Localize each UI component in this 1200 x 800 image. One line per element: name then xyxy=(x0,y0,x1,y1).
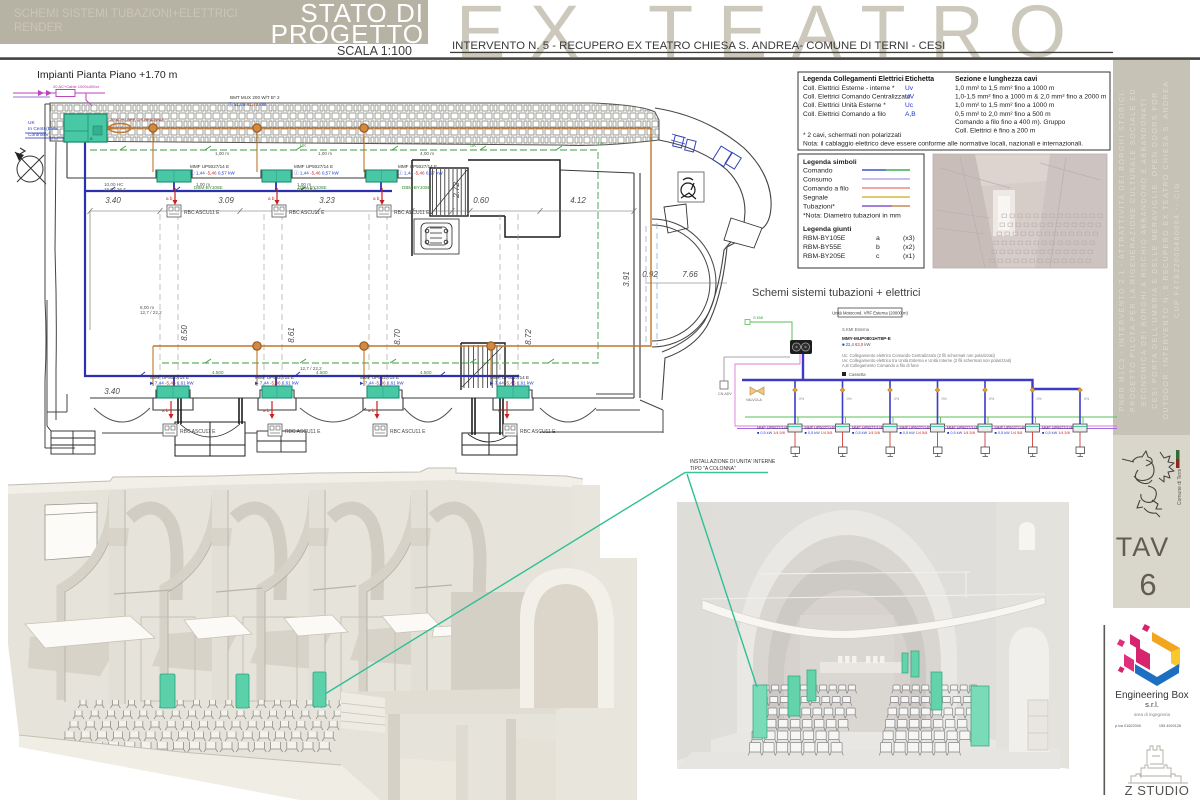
svg-text:Z STUDIO: Z STUDIO xyxy=(1125,783,1190,798)
svg-text:a b: a b xyxy=(373,196,380,201)
svg-text:UK: UK xyxy=(28,120,35,126)
svg-text:MMF UP5027/14 E: MMF UP5027/14 E xyxy=(360,375,399,380)
svg-text:■ 0,5 kW 1/4 5/8: ■ 0,5 kW 1/4 5/8 xyxy=(1042,431,1070,435)
svg-text:ⓘ 1,44 -5,46 0,57 kW: ⓘ 1,44 -5,46 0,57 kW xyxy=(294,170,339,177)
svg-text:0,5 mm² to 2,0 mm² fino a 500: 0,5 mm² to 2,0 mm² fino a 500 m xyxy=(955,111,1051,118)
svg-text:RBC ASCU11 E: RBC ASCU11 E xyxy=(390,429,426,435)
svg-text:A,B: A,B xyxy=(905,111,916,118)
svg-text:MMF UP5027/14 E: MMF UP5027/14 E xyxy=(150,375,189,380)
svg-text:BMT MUX 200 W/T B* 2: BMT MUX 200 W/T B* 2 xyxy=(230,95,280,100)
svg-text:DBM-BY105E: DBM-BY105E xyxy=(402,185,431,190)
svg-text:(x2): (x2) xyxy=(903,244,915,251)
svg-text:7.66: 7.66 xyxy=(682,270,698,279)
svg-text:S.KMI Esterna: S.KMI Esterna xyxy=(842,327,870,332)
svg-text:RBC ASCU11 E: RBC ASCU11 E xyxy=(520,429,556,435)
svg-text:Impianti Pianta Piano +1.70 m: Impianti Pianta Piano +1.70 m xyxy=(37,69,178,81)
svg-text:0%: 0% xyxy=(1084,397,1090,401)
svg-text:Cassetta: Cassetta xyxy=(849,372,866,377)
svg-text:*Nota: Diametro tubazioni in m: *Nota: Diametro tubazioni in mm xyxy=(803,213,901,220)
svg-text:MMF UP5027/14 E: MMF UP5027/14 E xyxy=(255,375,294,380)
svg-text:■ 0,5 kW 1/4 5/8: ■ 0,5 kW 1/4 5/8 xyxy=(852,431,880,435)
svg-text:0%: 0% xyxy=(1037,397,1043,401)
svg-text:MMF UP5027/14E: MMF UP5027/14E xyxy=(900,426,932,430)
svg-text:20 AC+U BRF C/S HEADWAY: 20 AC+U BRF C/S HEADWAY xyxy=(110,117,164,122)
svg-text:■ 0,5 kW 1/4 5/8: ■ 0,5 kW 1/4 5/8 xyxy=(947,431,975,435)
svg-text:1,00 m: 1,00 m xyxy=(318,151,332,156)
svg-text:EX TEATRO: EX TEATRO xyxy=(456,0,1066,73)
svg-text:CN-ADV: CN-ADV xyxy=(718,392,732,396)
svg-text:Coll. Elettrici è fino a 200 m: Coll. Elettrici è fino a 200 m xyxy=(955,128,1036,135)
svg-text:MMF UP5027/14 E: MMF UP5027/14 E xyxy=(490,375,529,380)
svg-text:0%: 0% xyxy=(799,397,805,401)
svg-text:OUTDOOR. INTERVENTO N. 5 RE: OUTDOOR. INTERVENTO N. 5 RECUPERO EX TEA… xyxy=(1163,81,1170,420)
svg-text:In Centr.(BMS: In Centr.(BMS xyxy=(28,126,58,132)
svg-text:MMF UP5027/14E: MMF UP5027/14E xyxy=(852,426,884,430)
svg-text:Comando a filo fino a 400 m).: Comando a filo fino a 400 m). Gruppo xyxy=(955,119,1066,126)
svg-text:b: b xyxy=(876,244,880,251)
svg-text:Consumo: Consumo xyxy=(803,177,832,184)
svg-text:6: 6 xyxy=(1139,567,1156,602)
svg-text:TIPO "A COLONNA": TIPO "A COLONNA" xyxy=(690,466,736,472)
svg-text:RBM-BY205E: RBM-BY205E xyxy=(803,253,846,260)
svg-text:▶ 7,44 -5,46 6,61 kW: ▶ 7,44 -5,46 6,61 kW xyxy=(490,381,534,386)
svg-text:Comando a filo: Comando a filo xyxy=(803,186,849,193)
svg-text:0,5 / 15,0: 0,5 / 15,0 xyxy=(297,187,317,192)
svg-text:a b: a b xyxy=(162,408,169,413)
svg-text:* 2 cavi, schermati non polari: * 2 cavi, schermati non polarizzati xyxy=(803,132,902,139)
svg-text:0%: 0% xyxy=(989,397,995,401)
svg-text:RBC ASCU11 E: RBC ASCU11 E xyxy=(289,210,325,216)
svg-text:MMF UP5027/14 E: MMF UP5027/14 E xyxy=(398,164,437,169)
svg-text:PNRR M1C3 - INTERVENTO 2.1 - A: PNRR M1C3 - INTERVENTO 2.1 - ATTRATTIVIT… xyxy=(1119,89,1126,412)
svg-text:3.91: 3.91 xyxy=(622,271,631,287)
svg-text:1,00 m: 1,00 m xyxy=(196,182,210,187)
svg-text:CUP F47B22000460004 -- CIG: CUP F47B22000460004 -- CIG xyxy=(1174,182,1181,318)
svg-text:Comando: Comando xyxy=(803,168,833,175)
svg-text:1,0-1,5 mm² fino a 1000 m & 2,: 1,0-1,5 mm² fino a 1000 m & 2,0 mm² fino… xyxy=(955,94,1107,101)
svg-text:Sezione e lunghezza cavi: Sezione e lunghezza cavi xyxy=(955,76,1037,83)
svg-text:Comune di Terni: Comune di Terni xyxy=(1177,469,1183,505)
svg-text:12,7 / 22,2: 12,7 / 22,2 xyxy=(140,310,162,315)
svg-text:■ 0,5 kW 1/4 5/8: ■ 0,5 kW 1/4 5/8 xyxy=(805,431,833,435)
svg-text:8.50: 8.50 xyxy=(180,325,189,341)
svg-text:4,00 m: 4,00 m xyxy=(420,151,434,156)
svg-text:UK: UK xyxy=(470,143,476,148)
svg-text:ⓘ 1,44 -5,46 0,57 kW: ⓘ 1,44 -5,46 0,57 kW xyxy=(398,170,443,177)
svg-text:PROGETTO PILOTA PER LA RIGENER: PROGETTO PILOTA PER LA RIGENERAZIONE CUL… xyxy=(1130,88,1137,412)
svg-text:MMF UP5027/14 E: MMF UP5027/14 E xyxy=(294,164,333,169)
svg-text:MMF UP5027/14E: MMF UP5027/14E xyxy=(757,426,789,430)
svg-text:■ 0,5 kW 1/4 5/8: ■ 0,5 kW 1/4 5/8 xyxy=(995,431,1023,435)
svg-text:15,9 / 26,7: 15,9 / 26,7 xyxy=(104,187,126,192)
svg-text:TAV: TAV xyxy=(1116,532,1171,562)
svg-text:Schemi sistemi tubazioni + ele: Schemi sistemi tubazioni + elettrici xyxy=(752,287,920,299)
svg-text:4.500: 4.500 xyxy=(420,370,432,375)
svg-text:0%: 0% xyxy=(942,397,948,401)
svg-text:a: a xyxy=(876,235,880,242)
svg-text:0%: 0% xyxy=(847,397,853,401)
svg-text:Coll. Elettrici Esterne - inte: Coll. Elettrici Esterne - interne * xyxy=(803,85,895,92)
svg-text:UK: UK xyxy=(300,143,306,148)
svg-text:ⓘ 51,08 41,70 kW: ⓘ 51,08 41,70 kW xyxy=(228,101,267,108)
svg-text:Segnale: Segnale xyxy=(803,195,828,202)
svg-text:RBM-BY105E: RBM-BY105E xyxy=(803,235,846,242)
svg-text:INTERVENTO N. 5 - RECUPERO EX: INTERVENTO N. 5 - RECUPERO EX TEATRO CHI… xyxy=(452,40,945,52)
svg-text:1,0 mm² to 1,5 mm² fino a 1000: 1,0 mm² to 1,5 mm² fino a 1000 m xyxy=(955,85,1055,92)
svg-text:ⓘ 1,44 -5,46 0,57 kW: ⓘ 1,44 -5,46 0,57 kW xyxy=(190,170,235,177)
svg-text:0.92: 0.92 xyxy=(642,270,658,279)
svg-text:20 AC+Cable 1000x400xx: 20 AC+Cable 1000x400xx xyxy=(53,84,99,89)
svg-text:8.70: 8.70 xyxy=(393,329,402,345)
svg-text:▶ 7,44 -5,46 6,61 kW: ▶ 7,44 -5,46 6,61 kW xyxy=(255,381,299,386)
svg-text:INSTALLAZIONE DI UNITA' INTERN: INSTALLAZIONE DI UNITA' INTERNE xyxy=(690,459,776,465)
svg-text:Legenda giunti: Legenda giunti xyxy=(803,226,851,233)
svg-text:■ 0,5 kW 1/4 5/8: ■ 0,5 kW 1/4 5/8 xyxy=(900,431,928,435)
svg-text:c: c xyxy=(876,253,880,260)
svg-text:ECONOMICA DEI BORGHI A RIS: ECONOMICA DEI BORGHI A RISCHIO ABBANDONO… xyxy=(1141,94,1148,405)
svg-text:MMF UP5027/14E: MMF UP5027/14E xyxy=(805,426,837,430)
svg-text:MMY-MUP0801HT8P-E: MMY-MUP0801HT8P-E xyxy=(842,336,891,341)
svg-text:Unità Motocond. VRF Esterna (2: Unità Motocond. VRF Esterna (20000 m) xyxy=(832,311,908,316)
svg-text:RBM-BY55E: RBM-BY55E xyxy=(803,244,842,251)
svg-text:CESI PORTA DELL'UMBRIA E D: CESI PORTA DELL'UMBRIA E DELLE MERAVIGLI… xyxy=(1152,91,1159,409)
svg-text:0%: 0% xyxy=(894,397,900,401)
svg-text:▶ 7,44 -5,46 6,61 kW: ▶ 7,44 -5,46 6,61 kW xyxy=(360,381,404,386)
svg-text:a b: a b xyxy=(368,408,375,413)
svg-text:8.72: 8.72 xyxy=(524,329,533,345)
svg-text:RENDER: RENDER xyxy=(14,22,63,34)
svg-text:area di ingegneria: area di ingegneria xyxy=(1134,712,1171,717)
svg-text:s.r.l.: s.r.l. xyxy=(1145,700,1159,709)
svg-text:RBC ASCU11 E: RBC ASCU11 E xyxy=(394,210,430,216)
svg-text:Coll. Elettrici Comando a filo: Coll. Elettrici Comando a filo xyxy=(803,111,886,118)
svg-text:▶ 7,44 -5,46 6,61 kW: ▶ 7,44 -5,46 6,61 kW xyxy=(150,381,194,386)
svg-text:Tubazioni*: Tubazioni* xyxy=(803,204,835,211)
svg-text:a b: a b xyxy=(166,196,173,201)
svg-text:(x3): (x3) xyxy=(903,235,915,242)
svg-text:RBC ASCU11 E: RBC ASCU11 E xyxy=(285,429,321,435)
svg-text:SCHEMI SISTEMI TUBAZIONI+ELETT: SCHEMI SISTEMI TUBAZIONI+ELETTRICI xyxy=(14,8,238,20)
svg-text:MMF UP5027/14E: MMF UP5027/14E xyxy=(947,426,979,430)
svg-text:8.61: 8.61 xyxy=(287,327,296,343)
svg-text:RBC ASCU11 E: RBC ASCU11 E xyxy=(180,429,216,435)
svg-text:RBC ASCU11 E: RBC ASCU11 E xyxy=(184,210,220,216)
svg-text:Uc: Uc xyxy=(905,102,914,109)
svg-text:MMF UP5027/14E: MMF UP5027/14E xyxy=(995,426,1027,430)
svg-text:MMF UP5027/14 E: MMF UP5027/14 E xyxy=(190,164,229,169)
svg-text:■ 22,4 63,0 kW: ■ 22,4 63,0 kW xyxy=(842,342,870,347)
svg-text:3.40: 3.40 xyxy=(105,196,121,205)
svg-text:Coll. Elettrici Unità Esterne: Coll. Elettrici Unità Esterne * xyxy=(803,102,886,109)
svg-text:a b: a b xyxy=(498,408,505,413)
svg-text:S.KMI: S.KMI xyxy=(753,316,763,320)
svg-text:0.60: 0.60 xyxy=(473,196,489,205)
svg-text:4.500: 4.500 xyxy=(212,370,224,375)
svg-text:Legenda simboli: Legenda simboli xyxy=(803,159,857,166)
svg-text:3.23: 3.23 xyxy=(319,196,335,205)
svg-text:3.40: 3.40 xyxy=(104,387,120,396)
svg-text:UK: UK xyxy=(598,141,604,146)
svg-text:12,7 / 22,2: 12,7 / 22,2 xyxy=(300,366,322,371)
svg-text:Legenda Collegamenti Elettrici: Legenda Collegamenti Elettrici xyxy=(803,76,904,83)
svg-text:Etichetta: Etichetta xyxy=(905,76,934,83)
svg-text:Uv: Uv xyxy=(905,85,914,92)
svg-text:A,B Collegamento Comando a fil: A,B Collegamento Comando a filo di fune xyxy=(842,363,919,368)
svg-text:1,0 mm² to 1,5 mm² fino a 1000: 1,0 mm² to 1,5 mm² fino a 1000 m xyxy=(955,102,1055,109)
svg-text:p.iva 01622000: p.iva 01622000 xyxy=(1115,724,1141,728)
svg-text:155 4920126: 155 4920126 xyxy=(1159,724,1181,728)
svg-text:3.09: 3.09 xyxy=(218,196,234,205)
svg-text:4.12: 4.12 xyxy=(570,196,586,205)
svg-text:■ 0,5 kW 1/4 5/8: ■ 0,5 kW 1/4 5/8 xyxy=(757,431,785,435)
svg-text:MMF UP5027/14E: MMF UP5027/14E xyxy=(1042,426,1074,430)
svg-text:a b: a b xyxy=(263,408,270,413)
svg-text:Nota: il cablaggio elettrico d: Nota: il cablaggio elettrico deve essere… xyxy=(803,141,1083,148)
svg-text:Coll. Elettrici Comando Centra: Coll. Elettrici Comando Centralizzato xyxy=(803,94,911,101)
svg-text:UV: UV xyxy=(905,94,915,101)
svg-text:a b: a b xyxy=(268,196,275,201)
svg-text:1,00 m: 1,00 m xyxy=(215,151,229,156)
svg-text:SCALA 1:100: SCALA 1:100 xyxy=(337,44,412,58)
svg-text:VALVOLA: VALVOLA xyxy=(746,398,762,402)
svg-text:(x1): (x1) xyxy=(903,253,915,260)
svg-text:2.72: 2.72 xyxy=(452,182,461,199)
